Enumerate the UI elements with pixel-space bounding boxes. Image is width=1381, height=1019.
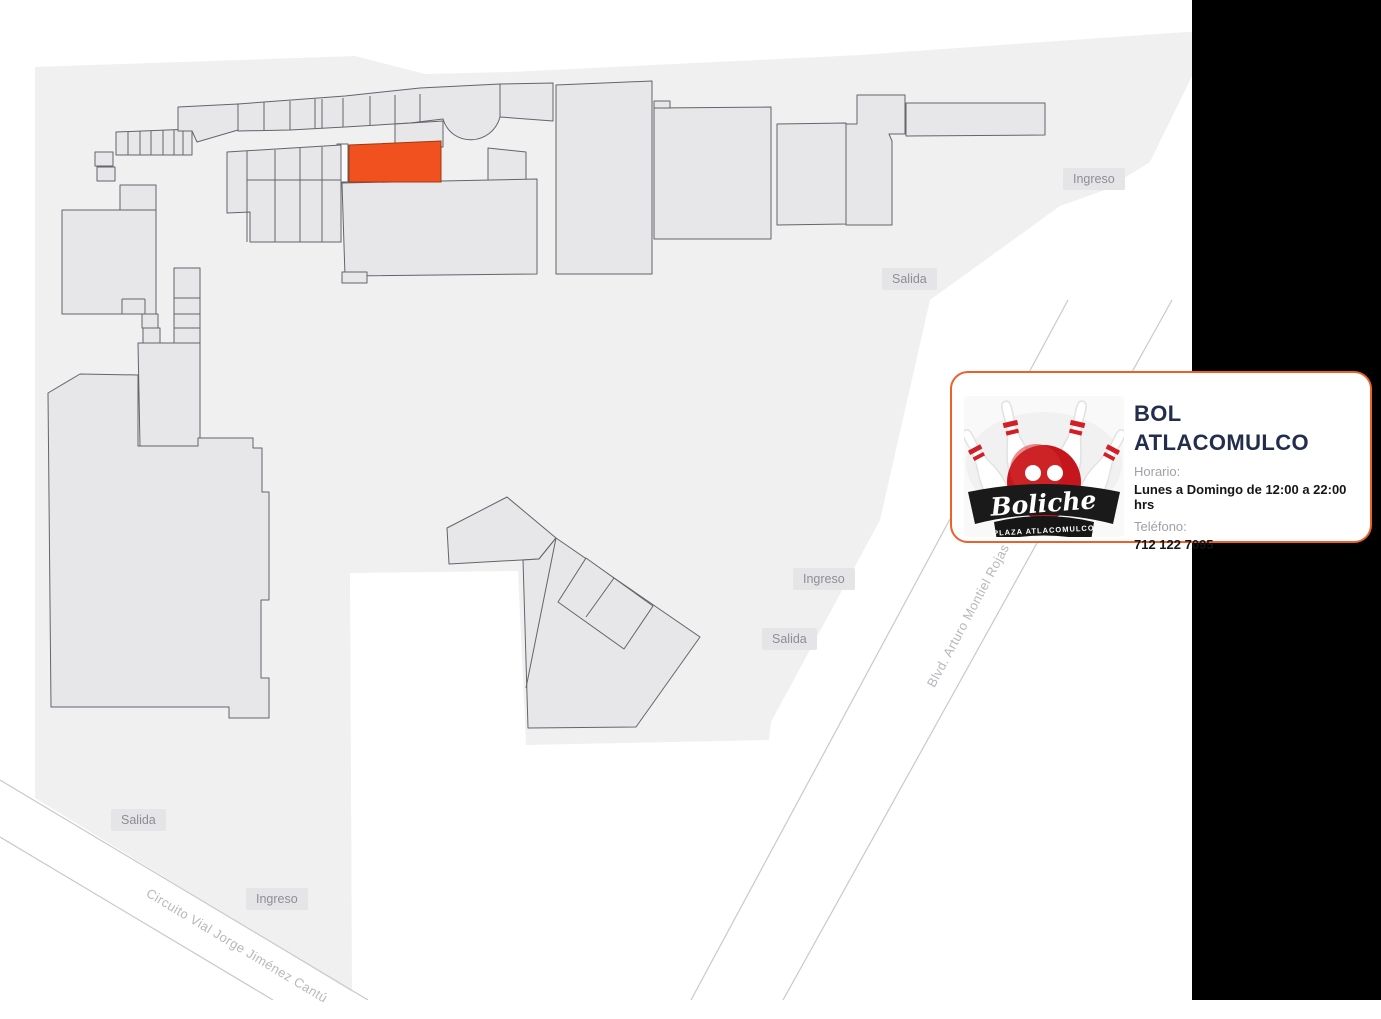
- store-unit[interactable]: [120, 185, 156, 210]
- hours-value: Lunes a Domingo de 12:00 a 22:00 hrs: [1134, 482, 1362, 512]
- store-unit-large[interactable]: [138, 343, 200, 447]
- store-unit[interactable]: [342, 272, 367, 283]
- logo-ribbon: Boliche PLAZA ATLACOMULCO: [968, 484, 1120, 537]
- marker-ingreso-bottom: Ingreso: [246, 888, 308, 910]
- store-title-line2: ATLACOMULCO: [1134, 428, 1362, 457]
- store-logo: Boliche PLAZA ATLACOMULCO: [964, 396, 1124, 537]
- phone-label: Teléfono:: [1134, 519, 1362, 534]
- marker-salida-bottom: Salida: [111, 809, 166, 831]
- store-unit-bar[interactable]: [906, 103, 1045, 136]
- hours-label: Horario:: [1134, 464, 1362, 479]
- marker-ingreso-top: Ingreso: [1063, 168, 1125, 190]
- store-unit[interactable]: [654, 101, 670, 108]
- marker-ingreso-center: Ingreso: [793, 568, 855, 590]
- store-unit-bol-atlacomulco-highlight[interactable]: [349, 141, 441, 182]
- store-unit[interactable]: [143, 328, 160, 343]
- store-unit-large[interactable]: [62, 210, 156, 314]
- store-unit[interactable]: [142, 314, 158, 328]
- store-unit[interactable]: [95, 152, 113, 166]
- marker-salida-center: Salida: [762, 628, 817, 650]
- store-unit-large[interactable]: [556, 81, 652, 274]
- phone-value: 712 122 7095: [1134, 537, 1362, 552]
- store-unit-large[interactable]: [777, 123, 846, 225]
- store-unit[interactable]: [97, 167, 115, 181]
- store-info-card: Boliche PLAZA ATLACOMULCO BOL ATLACOMULC…: [950, 371, 1372, 543]
- marker-salida-top: Salida: [882, 268, 937, 290]
- store-unit-row[interactable]: [116, 129, 192, 155]
- boliche-logo-graphic: Boliche PLAZA ATLACOMULCO: [964, 396, 1124, 537]
- store-unit-large[interactable]: [342, 179, 537, 276]
- store-title-line1: BOL: [1134, 399, 1362, 428]
- store-unit-large[interactable]: [654, 107, 771, 239]
- store-info: BOL ATLACOMULCO Horario: Lunes a Domingo…: [1134, 399, 1362, 552]
